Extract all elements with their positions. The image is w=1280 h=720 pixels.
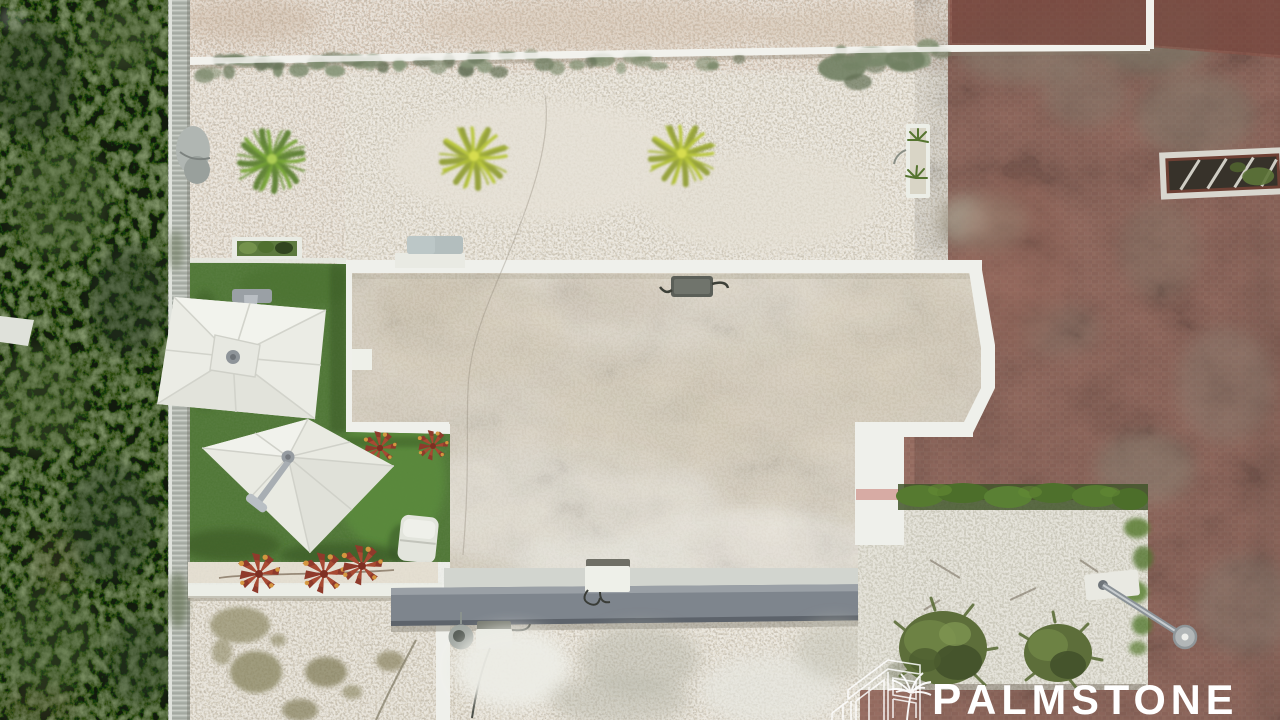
svg-text:PALMSTONE: PALMSTONE bbox=[932, 675, 1238, 720]
